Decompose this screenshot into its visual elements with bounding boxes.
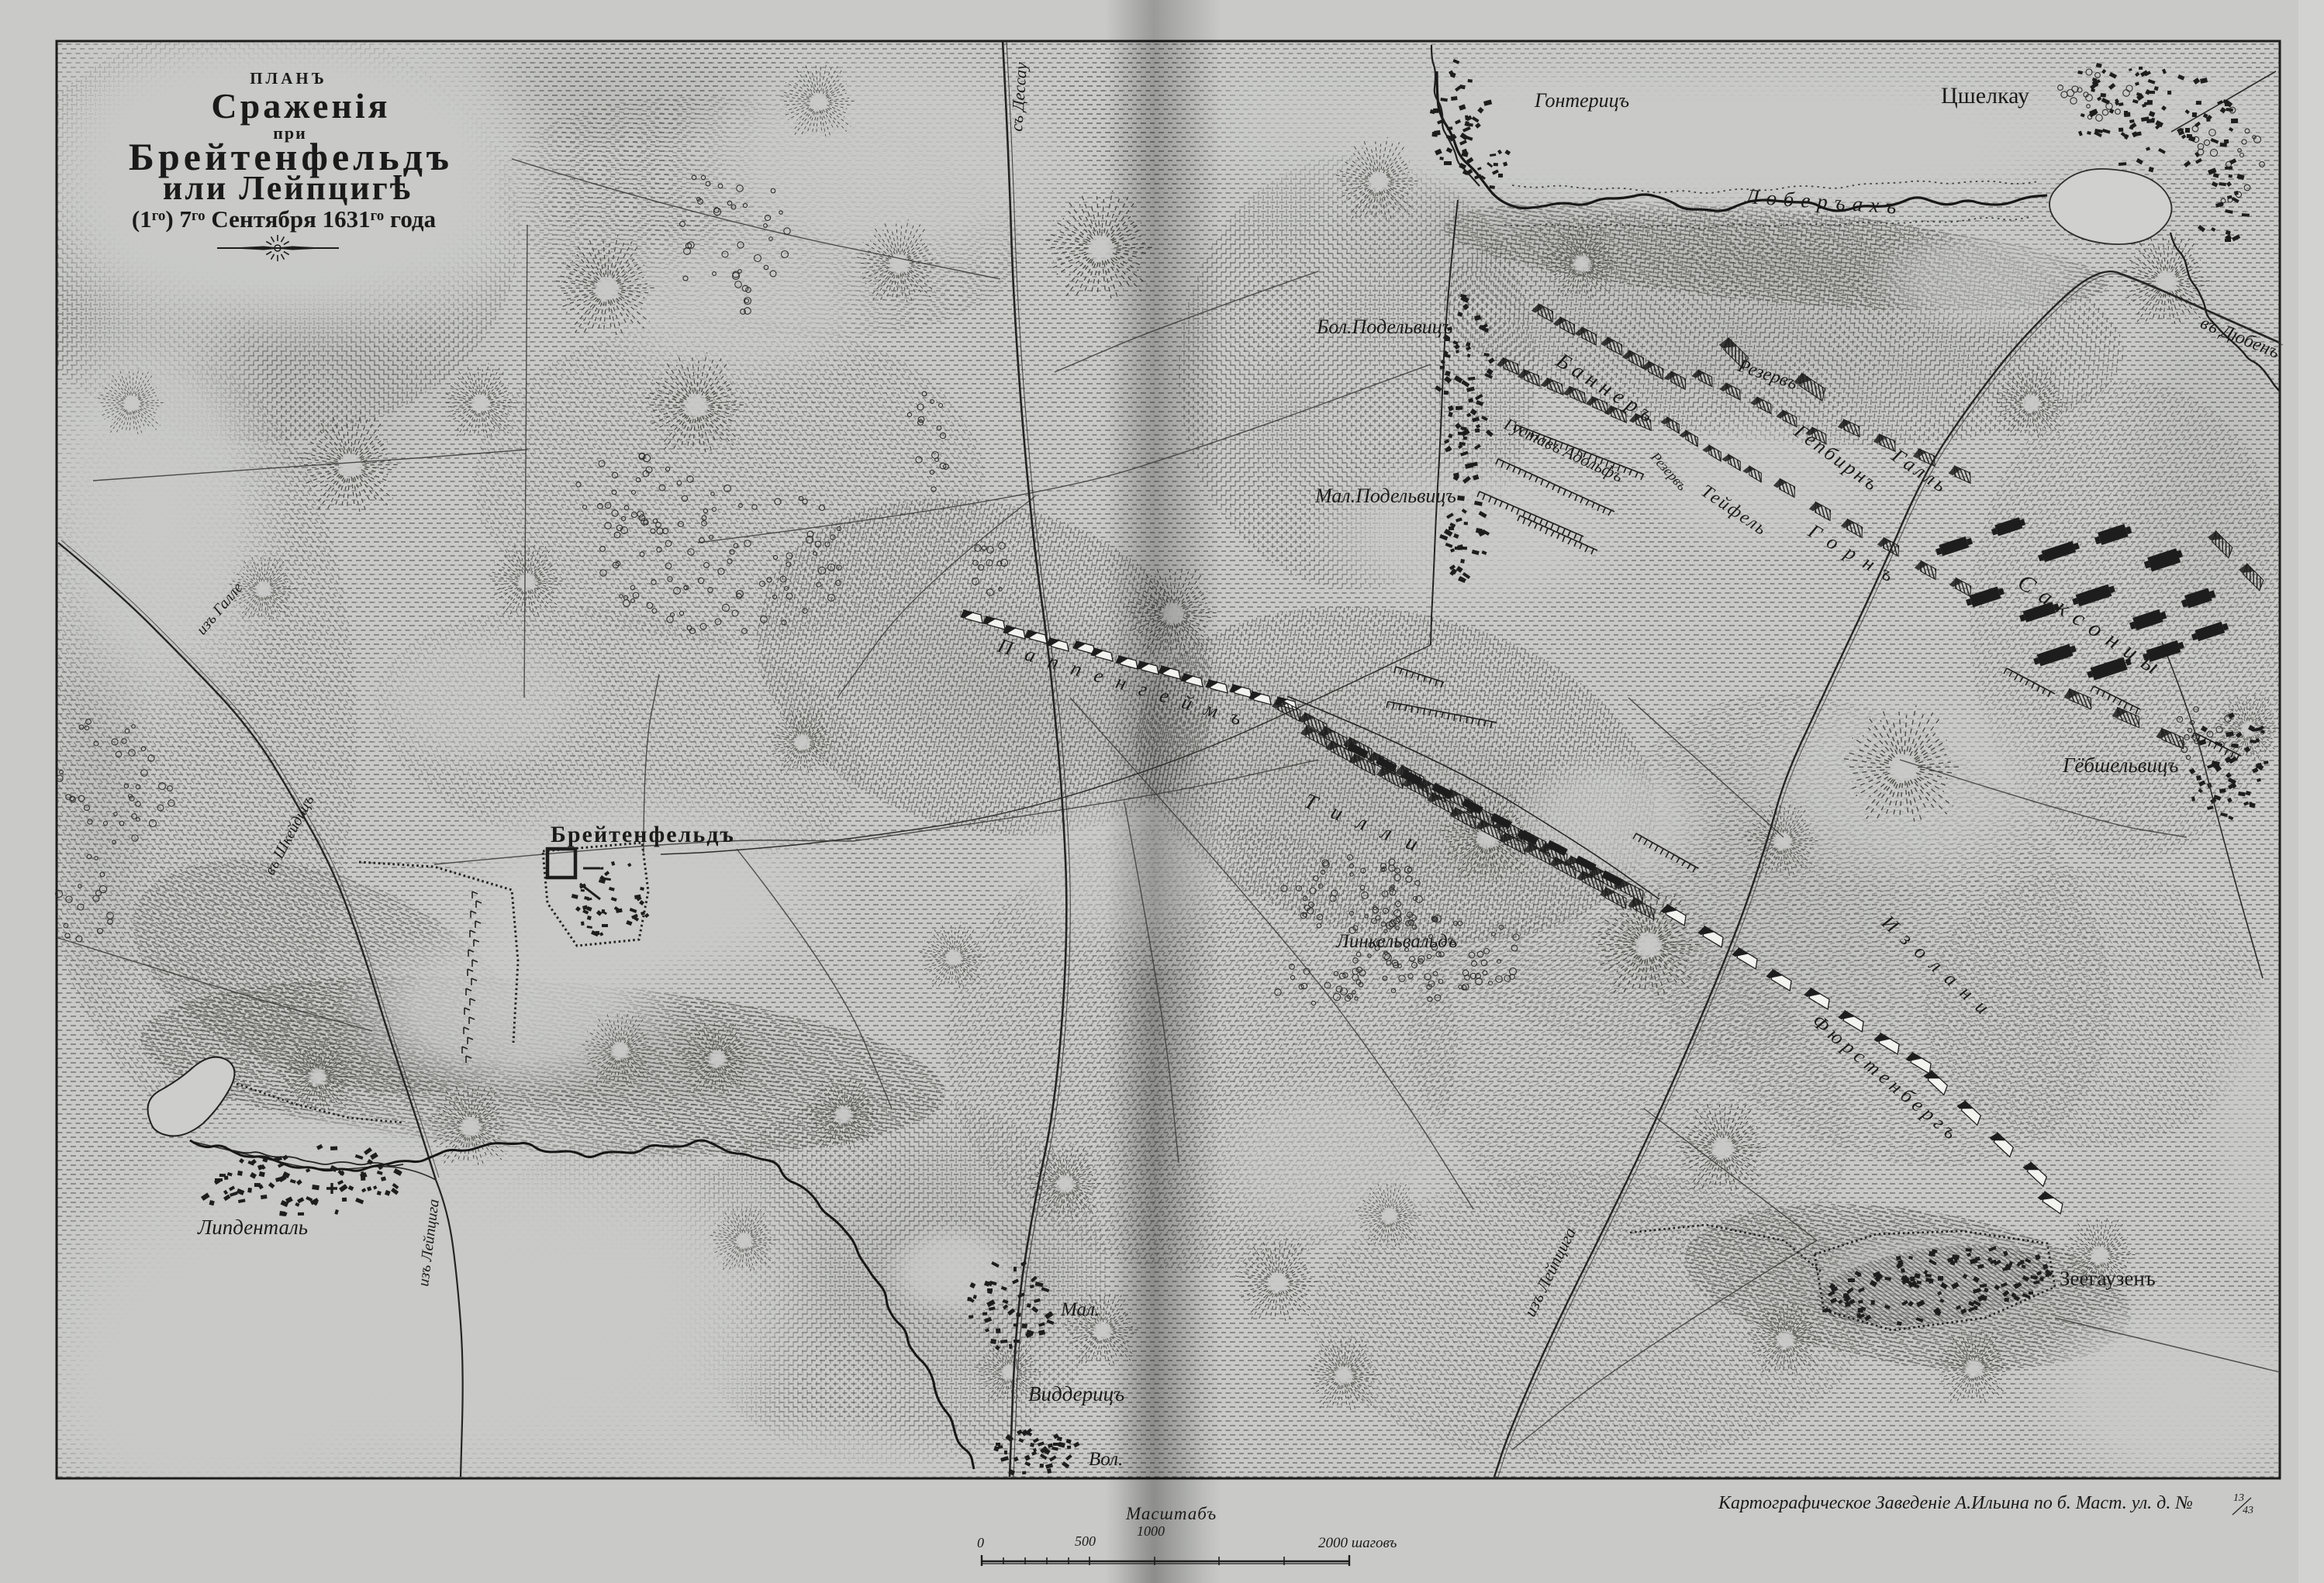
svg-text:ПЛАНЪ: ПЛАНЪ — [250, 69, 327, 88]
svg-text:Гонтерицъ: Гонтерицъ — [1534, 89, 1629, 112]
svg-text:13: 13 — [2233, 1492, 2244, 1504]
svg-text:1000: 1000 — [1137, 1523, 1165, 1539]
svg-text:Зеегаузенъ: Зеегаузенъ — [2060, 1267, 2156, 1290]
svg-text:(1го) 7го Сентября 1631го год: (1го) 7го Сентября 1631го года — [132, 205, 437, 233]
svg-text:или Лейпцигѣ: или Лейпцигѣ — [163, 169, 413, 207]
svg-text:Линкельвальдъ: Линкельвальдъ — [1335, 931, 1457, 952]
svg-text:Вол.: Вол. — [1089, 1449, 1123, 1470]
svg-text:Мал.Подельвицъ: Мал.Подельвицъ — [1314, 485, 1456, 507]
svg-text:500: 500 — [1075, 1533, 1096, 1549]
svg-text:Виддерицъ: Виддерицъ — [1028, 1382, 1124, 1405]
svg-text:Цшелкау: Цшелкау — [1941, 83, 2029, 109]
svg-text:Брейтенфельдъ: Брейтенфельдъ — [551, 822, 735, 847]
svg-text:0: 0 — [977, 1535, 984, 1550]
svg-text:Липденталь: Липденталь — [197, 1216, 308, 1239]
svg-text:Бол.Подельвицъ: Бол.Подельвицъ — [1316, 316, 1452, 338]
svg-text:2000 шаговъ: 2000 шаговъ — [1318, 1535, 1397, 1551]
svg-text:Гёбшельвицъ: Гёбшельвицъ — [2062, 754, 2178, 777]
svg-text:Мал.: Мал. — [1060, 1299, 1100, 1320]
svg-text:Масштабъ: Масштабъ — [1125, 1504, 1217, 1523]
svg-text:43: 43 — [2243, 1505, 2253, 1516]
svg-text:Картографическое Заведеніе А.И: Картографическое Заведеніе А.Ильина по б… — [1718, 1493, 2193, 1513]
svg-text:Сраженія: Сраженія — [211, 86, 390, 126]
